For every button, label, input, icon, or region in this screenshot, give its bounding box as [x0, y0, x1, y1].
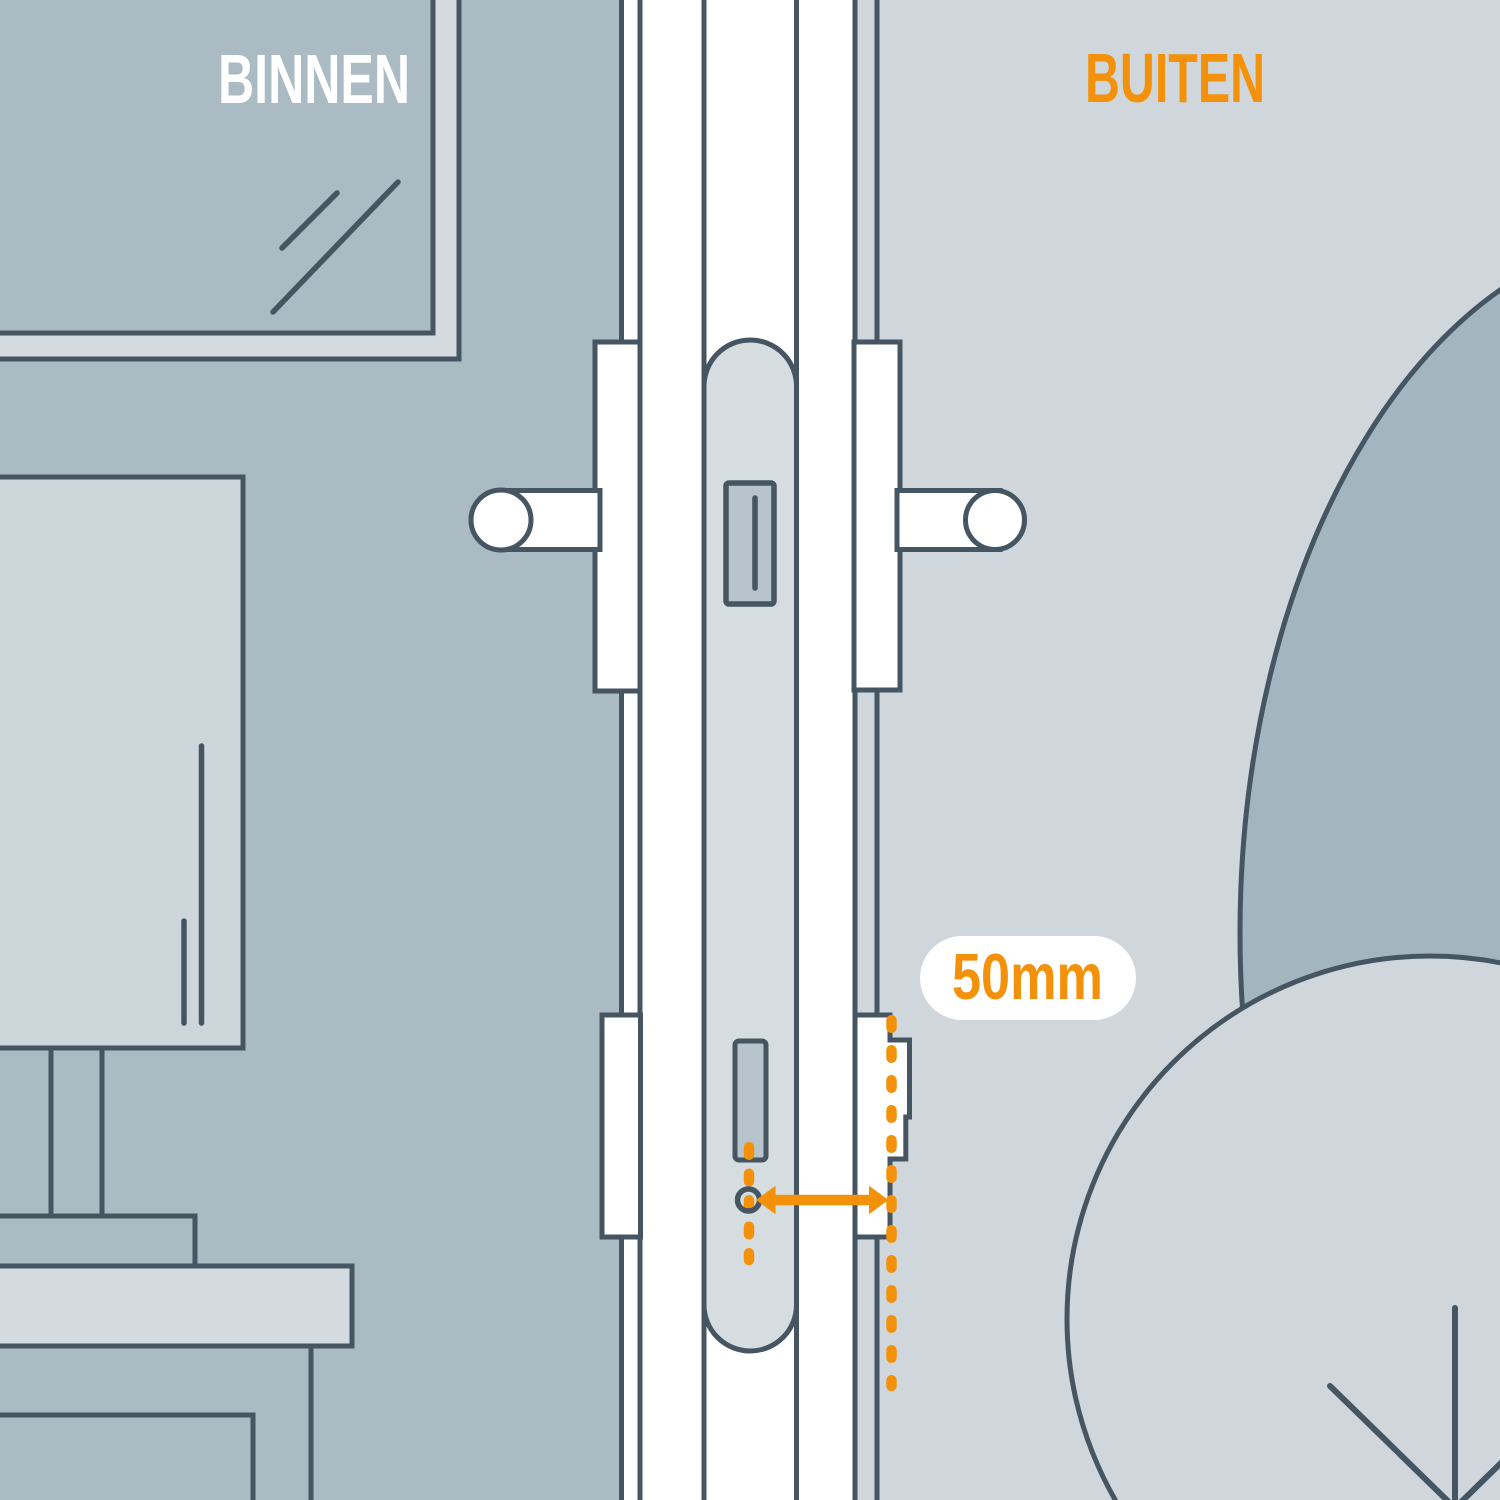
svg-text:50mm: 50mm: [952, 940, 1103, 1013]
svg-text:BUITEN: BUITEN: [1085, 39, 1265, 117]
svg-text:BINNEN: BINNEN: [218, 40, 410, 118]
